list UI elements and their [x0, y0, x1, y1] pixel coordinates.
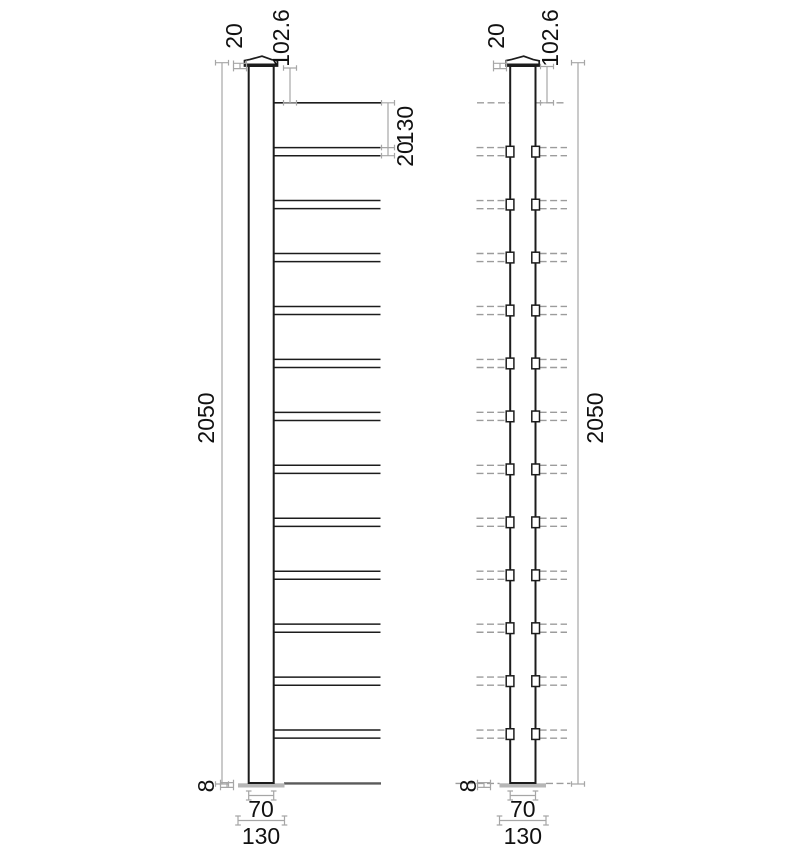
- rail: [274, 518, 381, 526]
- dim-label-rail-spacing-side: 130: [392, 106, 418, 144]
- rail-bracket: [506, 411, 514, 422]
- rail: [274, 306, 381, 314]
- dim-label-plate-width-front: 130: [504, 823, 542, 849]
- rail: [274, 571, 381, 579]
- rail-bracket: [506, 146, 514, 157]
- dim-label-cap-height-side: 20: [221, 23, 247, 49]
- rail-bracket: [532, 305, 540, 316]
- rail: [274, 677, 381, 685]
- rail: [274, 730, 381, 738]
- rail-bracket: [506, 729, 514, 740]
- rail: [274, 201, 381, 209]
- rail-bracket: [532, 623, 540, 634]
- rail-bracket: [506, 623, 514, 634]
- rail-bracket: [532, 252, 540, 263]
- rail-bracket: [532, 570, 540, 581]
- dim-label-top-offset-side: 102.6: [268, 9, 294, 67]
- rail-bracket: [532, 676, 540, 687]
- rail-bracket: [506, 517, 514, 528]
- rail-bracket: [532, 729, 540, 740]
- rail: [274, 359, 381, 367]
- technical-drawing: 20 102.6 130 20 2050 8 70 130 20 102.: [0, 0, 800, 850]
- rail-bracket: [506, 305, 514, 316]
- rail: [274, 465, 381, 473]
- rail-bracket: [506, 252, 514, 263]
- rail: [274, 148, 381, 156]
- rail-bracket: [506, 676, 514, 687]
- rail: [274, 624, 381, 632]
- rail-bracket: [506, 199, 514, 210]
- dim-label-overall-height-side: 2050: [193, 392, 219, 443]
- dim-label-plate-width-side: 130: [242, 823, 280, 849]
- rail-bracket: [506, 464, 514, 475]
- dim-label-overall-height-front: 2050: [582, 392, 608, 443]
- rail-bracket: [506, 358, 514, 369]
- rail-group-side: [274, 148, 381, 739]
- rail-bracket: [532, 146, 540, 157]
- rail-bracket: [532, 464, 540, 475]
- dim-label-top-offset-front: 102.6: [537, 9, 563, 67]
- dim-label-cap-height-front: 20: [483, 23, 509, 49]
- post-body: [249, 66, 274, 783]
- rail: [274, 254, 381, 262]
- rail-bracket: [532, 358, 540, 369]
- front-view: 20 102.6 2050 8 70 130: [455, 9, 608, 849]
- dim-label-post-width-side: 70: [248, 796, 274, 822]
- rail-bracket: [532, 199, 540, 210]
- dim-label-post-width-front: 70: [510, 796, 536, 822]
- rail: [274, 412, 381, 420]
- rail-bracket: [532, 411, 540, 422]
- side-view: 20 102.6 130 20 2050 8 70 130: [193, 9, 418, 849]
- dim-label-rail-thickness-side: 20: [392, 141, 418, 167]
- rail-bracket: [532, 517, 540, 528]
- rail-bracket: [506, 570, 514, 581]
